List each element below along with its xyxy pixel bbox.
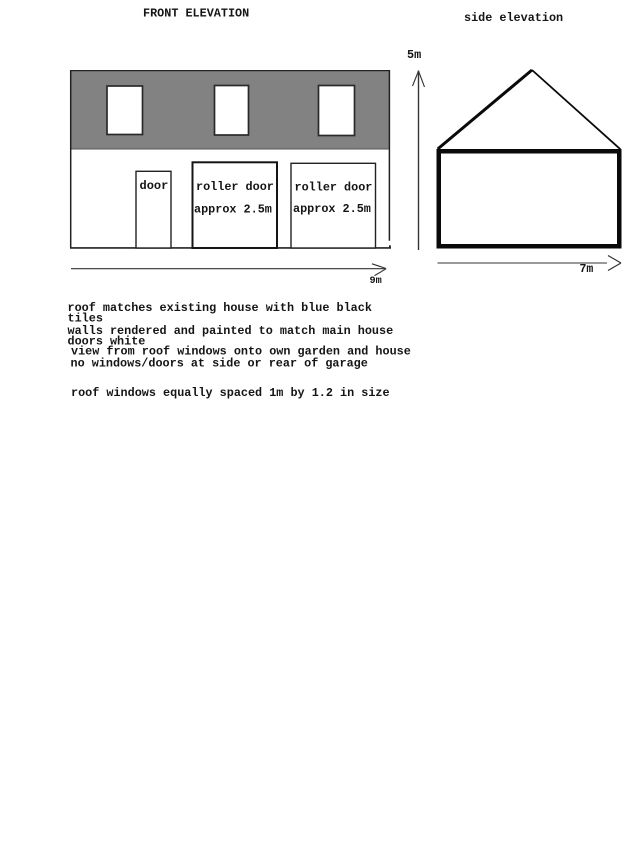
- svg-text:roof matches existing house wi: roof matches existing house with blue bl…: [68, 301, 372, 315]
- svg-text:door: door: [140, 179, 169, 193]
- svg-text:5m: 5m: [407, 48, 421, 62]
- svg-text:side elevation: side elevation: [464, 11, 563, 25]
- svg-text:approx 2.5m: approx 2.5m: [194, 203, 272, 217]
- svg-text:roller door: roller door: [295, 181, 373, 195]
- svg-text:approx 2.5m: approx 2.5m: [293, 202, 371, 216]
- svg-text:7m: 7m: [580, 263, 594, 276]
- svg-text:no windows/doors at side or re: no windows/doors at side or rear of gara…: [71, 357, 368, 371]
- svg-text:FRONT ELEVATION: FRONT ELEVATION: [143, 7, 249, 21]
- svg-text:roof windows equally spaced 1m: roof windows equally spaced 1m by 1.2 in…: [71, 386, 390, 400]
- svg-text:9m: 9m: [370, 276, 382, 287]
- svg-text:roller door: roller door: [196, 180, 274, 194]
